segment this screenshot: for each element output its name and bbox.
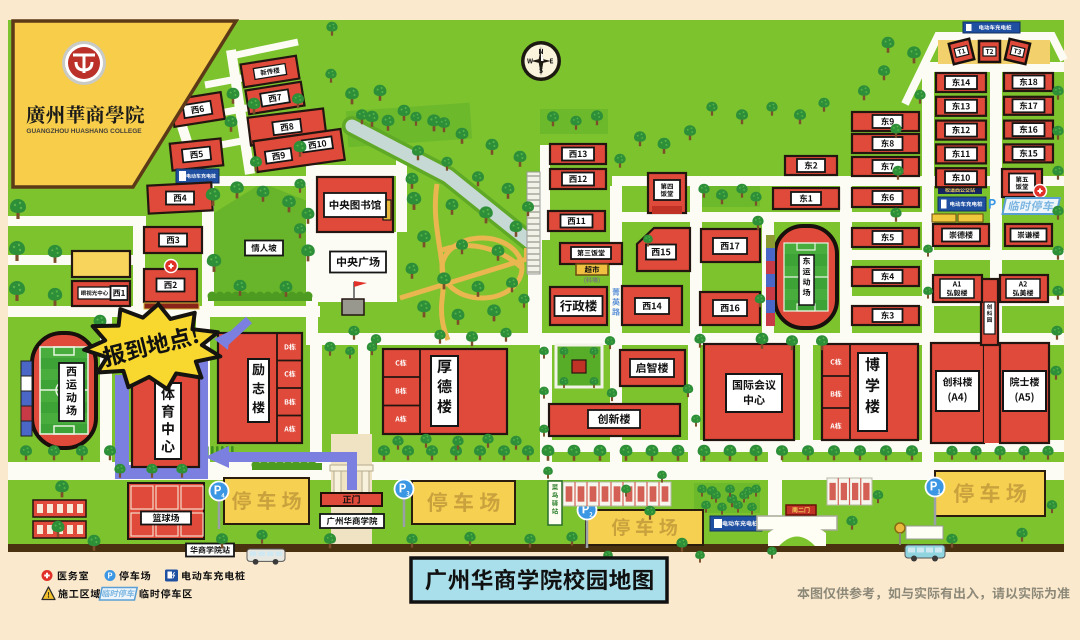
svg-text:GUANGZHOU HUASHANG COLLEGE: GUANGZHOU HUASHANG COLLEGE: [26, 128, 142, 135]
